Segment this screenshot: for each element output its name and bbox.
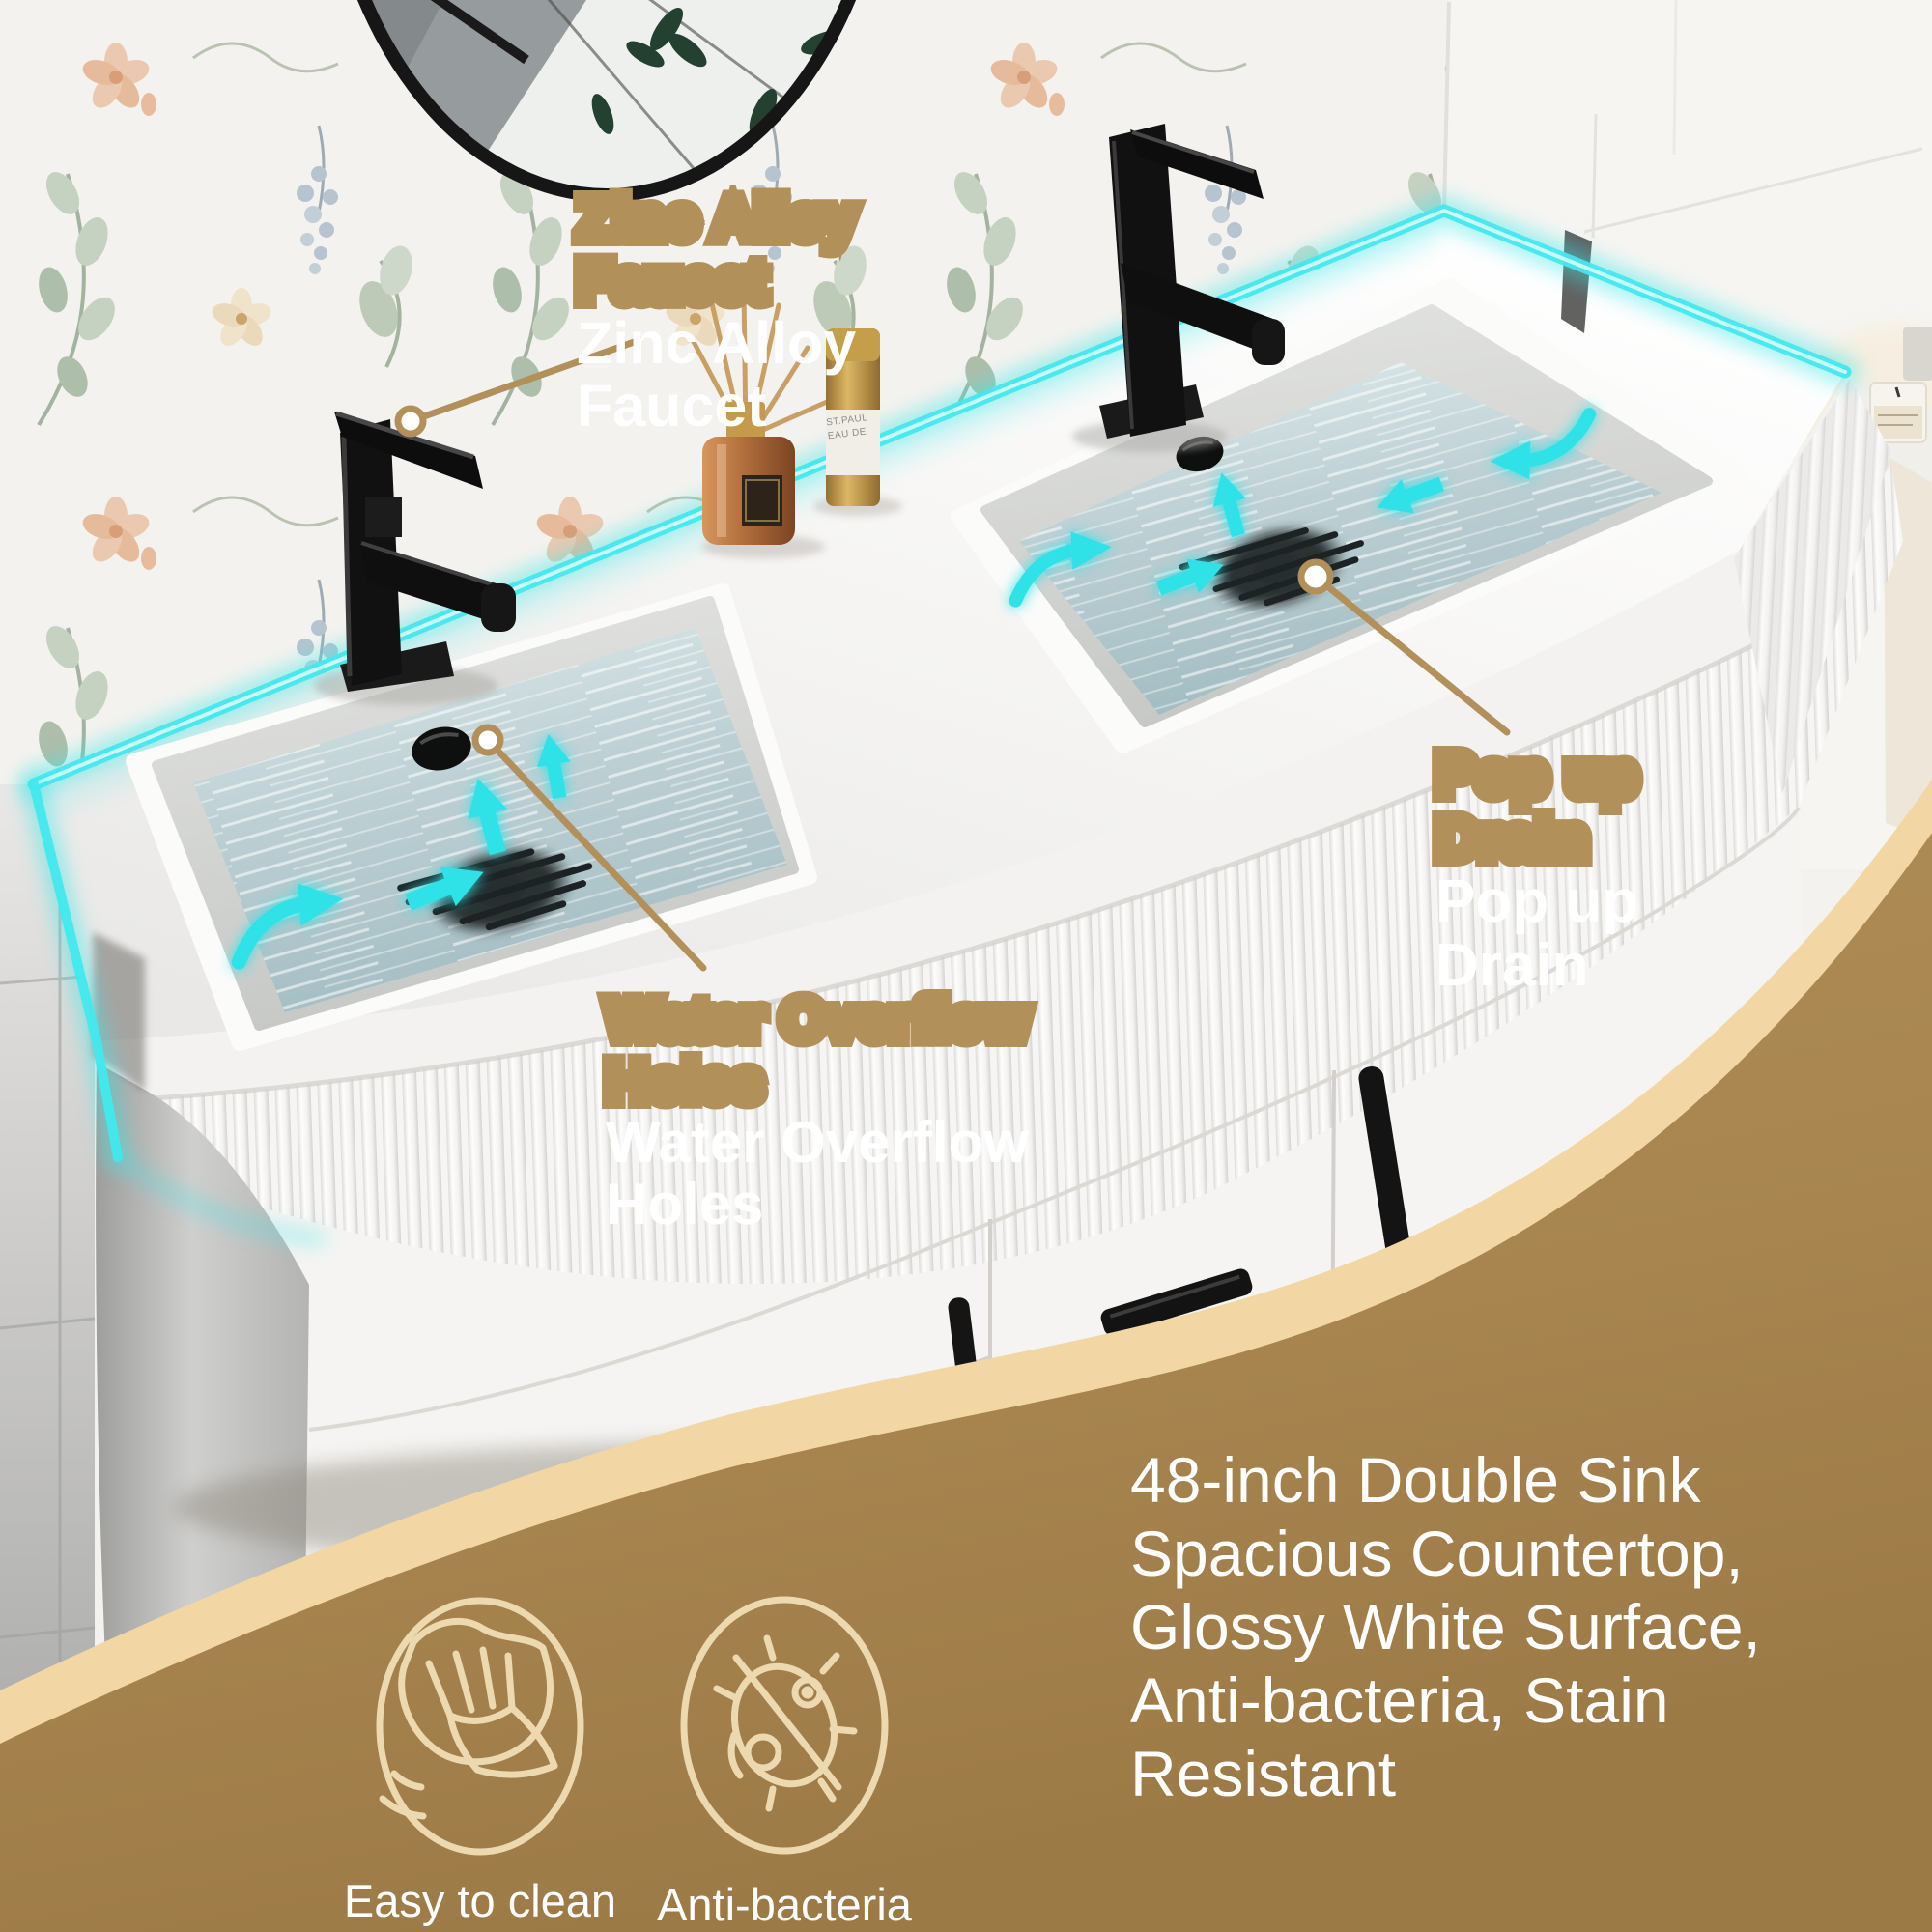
feature-description-text: 48-inch Double Sink Spacious Countertop,… [1130, 1443, 1845, 1810]
callout-dot [475, 727, 500, 753]
callout-zinc-alloy-faucet: Zinc Alloy Faucet Zinc Alloy Faucet [577, 187, 856, 499]
callout-water-overflow-holes: Water Overflow Holes Water Overflow Hole… [606, 989, 1029, 1296]
vanity-product-infographic: Zinc Alloy Faucet Zinc Alloy Faucet Wate… [0, 0, 1932, 1932]
badge-label-anti-bacteria: Anti-bacteria [582, 1878, 987, 1931]
callout-pop-up-drain: Pop up Drain Pop up Drain [1435, 744, 1638, 1062]
callout-dot [1301, 562, 1330, 591]
callout-dot [398, 409, 423, 434]
